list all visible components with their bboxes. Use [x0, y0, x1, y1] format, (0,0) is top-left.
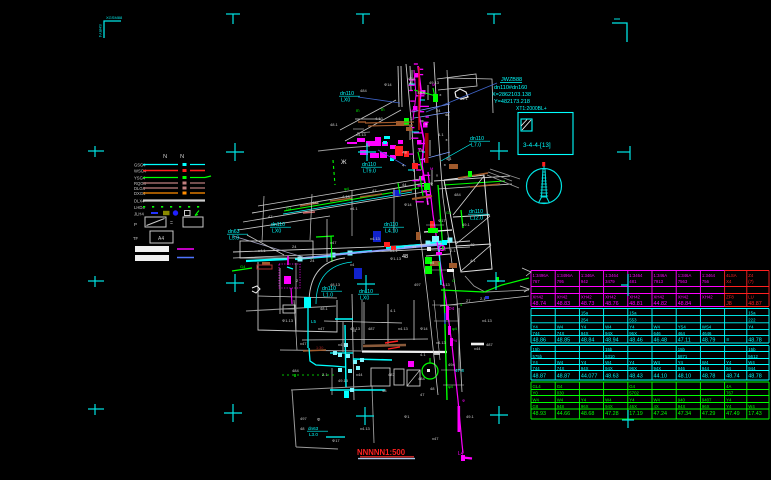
svg-text:47.8: 47.8 — [455, 368, 464, 373]
svg-text:L1.0: L1.0 — [323, 293, 333, 299]
svg-text:1:346A: 1:346A — [678, 273, 692, 278]
svg-text:G4: G4 — [629, 384, 635, 389]
svg-text:LX0: LX0 — [272, 229, 281, 235]
svg-text:484: 484 — [454, 192, 461, 197]
svg-text:m: m — [356, 108, 360, 113]
svg-text:575b: 575b — [533, 354, 543, 359]
svg-text:15a: 15a — [748, 311, 756, 316]
svg-text:G4: G4 — [446, 210, 452, 215]
svg-text:dn63: dn63 — [308, 426, 319, 431]
svg-text:47.24: 47.24 — [654, 411, 668, 417]
svg-text:948: 948 — [557, 404, 565, 409]
svg-text:XH42: XH42 — [678, 295, 689, 300]
svg-text:G8: G8 — [533, 404, 539, 409]
svg-text:X=2862103.138: X=2862103.138 — [492, 92, 531, 98]
svg-text:48.74: 48.74 — [726, 374, 740, 380]
svg-text:Y4: Y4 — [678, 360, 684, 365]
svg-text:94X: 94X — [581, 331, 589, 336]
svg-text:46X: 46X — [629, 404, 637, 409]
svg-text:484: 484 — [312, 200, 319, 205]
svg-text:47.28: 47.28 — [605, 411, 619, 417]
svg-text:94X: 94X — [605, 366, 613, 371]
svg-text:47.11: 47.11 — [678, 337, 691, 343]
svg-text:484: 484 — [292, 368, 299, 373]
svg-text:48: 48 — [418, 148, 423, 153]
svg-text:15a: 15a — [629, 311, 637, 316]
svg-text:Y4: Y4 — [748, 325, 754, 330]
svg-text:4.1: 4.1 — [446, 156, 452, 161]
svg-text:48.83: 48.83 — [557, 301, 571, 307]
svg-text:4LSA: 4LSA — [726, 273, 737, 278]
svg-text:48.85: 48.85 — [557, 337, 571, 343]
svg-text:1:3496A: 1:3496A — [557, 273, 573, 278]
svg-text:W4: W4 — [654, 325, 661, 330]
svg-text:5310: 5310 — [605, 354, 615, 359]
svg-text:SHRY4: SHRY4 — [98, 24, 103, 38]
svg-text:48.13: 48.13 — [330, 282, 341, 287]
svg-text:L12.0: L12.0 — [470, 216, 483, 222]
svg-text:L4: L4 — [458, 451, 464, 457]
svg-text:94X: 94X — [605, 404, 613, 409]
svg-text:4.13: 4.13 — [342, 194, 351, 199]
svg-text:1:30: 1:30 — [316, 346, 323, 350]
svg-text:494: 494 — [448, 362, 455, 367]
svg-text:15b: 15b — [748, 347, 756, 352]
svg-text:744: 744 — [533, 366, 541, 371]
svg-text:767: 767 — [533, 279, 541, 284]
svg-text:Y4: Y4 — [629, 325, 635, 330]
svg-text:Φ: Φ — [425, 122, 428, 127]
svg-text:Y4: Y4 — [581, 360, 587, 365]
svg-text:4.13: 4.13 — [375, 116, 384, 121]
svg-text:Y4: Y4 — [726, 360, 732, 365]
svg-text:5871: 5871 — [678, 354, 688, 359]
svg-text:J8: J8 — [726, 301, 732, 307]
svg-text:x47: x47 — [432, 436, 439, 441]
svg-text:96X: 96X — [629, 366, 637, 371]
svg-text:48.78: 48.78 — [748, 337, 762, 343]
svg-text:49.1: 49.1 — [466, 414, 475, 419]
svg-text:(7): (7) — [748, 279, 754, 284]
svg-text:48.78: 48.78 — [702, 374, 716, 380]
svg-text:24: 24 — [292, 244, 297, 249]
svg-text:767: 767 — [726, 391, 734, 396]
svg-text:48: 48 — [382, 388, 387, 393]
svg-text:W4: W4 — [533, 398, 540, 403]
svg-text:W4: W4 — [702, 360, 709, 365]
svg-text:48.87: 48.87 — [748, 301, 762, 307]
svg-text:Φ1.13: Φ1.13 — [282, 318, 294, 323]
svg-text:48.87: 48.87 — [533, 374, 547, 380]
svg-text:=: = — [170, 221, 173, 227]
svg-text:464: 464 — [678, 331, 686, 336]
svg-text:M: M — [430, 166, 433, 171]
svg-text:x: x — [423, 90, 425, 95]
svg-text:P4: P4 — [452, 338, 458, 343]
svg-text:XH42: XH42 — [605, 295, 616, 300]
svg-text:XH42: XH42 — [533, 295, 544, 300]
svg-text:48.86: 48.86 — [533, 337, 547, 343]
svg-text:487: 487 — [368, 326, 375, 331]
svg-text:487: 487 — [486, 342, 493, 347]
svg-text:44.077: 44.077 — [581, 374, 598, 380]
svg-text:Φ: Φ — [462, 398, 465, 403]
svg-text:TF: TF — [133, 236, 139, 241]
svg-text:Y0: Y0 — [533, 391, 539, 396]
svg-text:94X: 94X — [605, 331, 613, 336]
svg-text:φ4: φ4 — [448, 384, 454, 389]
svg-text:24: 24 — [436, 108, 441, 113]
svg-text:48: 48 — [470, 242, 475, 247]
svg-text:x4.13: x4.13 — [360, 426, 371, 431]
svg-text:48.79: 48.79 — [702, 337, 716, 343]
svg-text:44.66: 44.66 — [557, 411, 571, 417]
svg-text:L3.0: L3.0 — [309, 432, 318, 437]
svg-text:756: 756 — [702, 279, 710, 284]
svg-text:2.1: 2.1 — [450, 248, 456, 253]
svg-text:942: 942 — [581, 279, 589, 284]
svg-text:W4: W4 — [557, 325, 564, 330]
svg-text:15b: 15b — [605, 347, 613, 352]
svg-text:φ4: φ4 — [452, 326, 458, 331]
svg-text:XH42: XH42 — [629, 295, 640, 300]
svg-text:4.1: 4.1 — [438, 132, 444, 137]
svg-text:Z4: Z4 — [748, 273, 754, 278]
svg-text:15b: 15b — [678, 347, 686, 352]
svg-text:X4: X4 — [726, 279, 732, 284]
svg-text:L7.0: L7.0 — [471, 143, 481, 149]
svg-text:x: x — [439, 92, 441, 97]
svg-text:487: 487 — [388, 372, 395, 377]
svg-text:A4: A4 — [158, 236, 164, 242]
svg-text:795: 795 — [557, 279, 565, 284]
svg-text:JLH4: JLH4 — [134, 212, 144, 217]
svg-text:96X: 96X — [581, 404, 589, 409]
svg-text:48.73: 48.73 — [581, 301, 595, 307]
svg-text:484: 484 — [360, 88, 367, 93]
svg-text:x4.13: x4.13 — [436, 340, 447, 345]
svg-text:48.78: 48.78 — [748, 374, 762, 380]
svg-text:x44: x44 — [356, 372, 363, 377]
svg-text:YS4: YS4 — [678, 325, 687, 330]
svg-text:Φ17: Φ17 — [438, 218, 446, 223]
svg-text:x4.1: x4.1 — [258, 248, 266, 253]
svg-text:94X: 94X — [654, 366, 662, 371]
svg-text:x44: x44 — [474, 346, 481, 351]
svg-text:1:3464: 1:3464 — [702, 273, 716, 278]
svg-text:030: 030 — [557, 391, 565, 396]
svg-text:481: 481 — [629, 279, 637, 284]
svg-text:LX0: LX0 — [360, 296, 369, 302]
svg-text:48: 48 — [402, 149, 407, 154]
svg-text:944: 944 — [702, 366, 710, 371]
svg-text:4.1: 4.1 — [390, 308, 396, 313]
svg-text:Y4: Y4 — [629, 360, 635, 365]
svg-text:XH42: XH42 — [702, 295, 713, 300]
svg-text:47: 47 — [372, 188, 377, 193]
svg-text:W4: W4 — [748, 404, 755, 409]
svg-text:G4: G4 — [240, 264, 246, 269]
svg-text:x: x — [444, 162, 446, 167]
svg-text:74X: 74X — [557, 366, 565, 371]
svg-text:946: 946 — [678, 366, 686, 371]
svg-text:3-4-4-[13]: 3-4-4-[13] — [523, 142, 551, 149]
svg-text:48.68: 48.68 — [581, 411, 595, 417]
svg-text:4646: 4646 — [702, 331, 712, 336]
svg-text:24: 24 — [310, 258, 315, 263]
svg-text:x4.1: x4.1 — [390, 248, 398, 253]
svg-text:48.87: 48.87 — [557, 374, 571, 380]
svg-text:G: G — [452, 278, 455, 283]
svg-text:2.1: 2.1 — [480, 296, 486, 301]
svg-text:LT9.0: LT9.0 — [363, 169, 376, 175]
svg-text:94X: 94X — [678, 404, 686, 409]
svg-text:3479: 3479 — [605, 279, 615, 284]
svg-text:NNNNN1:500: NNNNN1:500 — [357, 448, 406, 457]
svg-text:LX0: LX0 — [341, 98, 350, 104]
svg-text:48.93: 48.93 — [533, 411, 547, 417]
svg-text:49.13: 49.13 — [338, 378, 349, 383]
svg-text:49.1: 49.1 — [462, 222, 471, 227]
svg-text:44.10: 44.10 — [654, 374, 668, 380]
svg-text:553: 553 — [629, 318, 637, 323]
svg-text:15b: 15b — [533, 347, 541, 352]
svg-text:W4: W4 — [654, 360, 661, 365]
svg-text:7563: 7563 — [678, 279, 688, 284]
svg-text:Φ4: Φ4 — [448, 306, 455, 311]
svg-text:Y4: Y4 — [533, 325, 539, 330]
svg-text:47.49: 47.49 — [726, 411, 740, 417]
svg-text:WS4: WS4 — [702, 325, 712, 330]
svg-text:Y=482173.218: Y=482173.218 — [494, 99, 530, 105]
svg-text:XH42: XH42 — [557, 295, 568, 300]
svg-text:17.43: 17.43 — [748, 411, 762, 417]
svg-text:L5: L5 — [311, 319, 316, 324]
svg-text:≡: ≡ — [726, 337, 729, 343]
svg-text:4.1: 4.1 — [420, 352, 426, 357]
svg-text:48.46: 48.46 — [629, 337, 643, 343]
svg-text:7913: 7913 — [654, 279, 664, 284]
svg-text:47: 47 — [268, 214, 273, 219]
svg-text:W4: W4 — [605, 360, 612, 365]
svg-text:x4.13: x4.13 — [356, 132, 367, 137]
svg-text:48: 48 — [300, 426, 305, 431]
svg-text:φ4: φ4 — [344, 186, 350, 191]
svg-text:4.13: 4.13 — [442, 282, 451, 287]
svg-text:N: N — [180, 154, 184, 160]
svg-text:ZF8: ZF8 — [726, 295, 734, 300]
svg-text:48: 48 — [417, 90, 422, 95]
svg-text:Φ14: Φ14 — [420, 326, 428, 331]
svg-text:m: m — [381, 107, 385, 112]
svg-text:XH42: XH42 — [654, 295, 665, 300]
svg-text:G4: G4 — [557, 384, 563, 389]
svg-text:W4: W4 — [654, 398, 661, 403]
svg-text:XT1:2000BL+: XT1:2000BL+ — [516, 106, 547, 112]
svg-text:Y4: Y4 — [533, 360, 539, 365]
svg-text:W4: W4 — [557, 360, 564, 365]
svg-text:17.19: 17.19 — [629, 411, 643, 417]
svg-text:1:3464: 1:3464 — [605, 273, 619, 278]
svg-text:Φ: Φ — [421, 118, 424, 123]
svg-text:Φ14: Φ14 — [404, 202, 412, 207]
svg-text:1:346A: 1:346A — [654, 273, 668, 278]
svg-text:x4.1: x4.1 — [350, 206, 358, 211]
svg-text:W4: W4 — [605, 325, 612, 330]
svg-text:48.74: 48.74 — [533, 301, 547, 307]
svg-text:Y4: Y4 — [726, 398, 732, 403]
svg-text:47: 47 — [420, 392, 425, 397]
svg-text:G4: G4 — [286, 206, 292, 211]
svg-text:497: 497 — [414, 282, 421, 287]
svg-text:P: P — [134, 222, 137, 227]
svg-text:x47: x47 — [330, 240, 337, 245]
svg-text:5612: 5612 — [748, 354, 758, 359]
svg-text:LU: LU — [748, 295, 754, 300]
svg-text:484: 484 — [418, 376, 425, 381]
svg-text:254: 254 — [581, 318, 589, 323]
svg-text:48.94: 48.94 — [605, 337, 619, 343]
svg-text:44: 44 — [412, 244, 417, 249]
svg-text:96X: 96X — [629, 331, 637, 336]
svg-text:27: 27 — [466, 298, 471, 303]
svg-text:L5.0: L5.0 — [229, 236, 239, 242]
svg-text:XH42: XH42 — [581, 295, 592, 300]
svg-text:96X: 96X — [702, 404, 710, 409]
svg-text:5702: 5702 — [629, 391, 639, 396]
svg-text:48.63: 48.63 — [605, 374, 619, 380]
svg-text:x4.13: x4.13 — [370, 236, 381, 241]
svg-text:744: 744 — [533, 331, 541, 336]
svg-text:Y4: Y4 — [629, 398, 635, 403]
svg-text:XGSM88: XGSM88 — [106, 15, 123, 20]
svg-text:W4: W4 — [605, 398, 612, 403]
svg-text:x4.13: x4.13 — [338, 342, 349, 347]
svg-text:944: 944 — [748, 366, 756, 371]
svg-text:46.48: 46.48 — [654, 337, 668, 343]
svg-text:Y4: Y4 — [726, 404, 732, 409]
svg-text:74X: 74X — [557, 331, 565, 336]
svg-text:9407: 9407 — [702, 398, 712, 403]
svg-text:W4: W4 — [557, 398, 564, 403]
svg-text:Φ: Φ — [430, 181, 433, 186]
svg-text:M: M — [410, 108, 413, 113]
svg-text:94X: 94X — [581, 366, 589, 371]
svg-text:48.10: 48.10 — [678, 374, 692, 380]
svg-text:W4: W4 — [748, 360, 755, 365]
svg-text:1:3464: 1:3464 — [629, 273, 643, 278]
svg-text:M: M — [432, 82, 435, 87]
svg-text:Y4: Y4 — [581, 398, 587, 403]
svg-text:Φ17: Φ17 — [332, 438, 340, 443]
svg-text:2.1: 2.1 — [322, 372, 328, 377]
svg-text:Φ1.13: Φ1.13 — [390, 256, 402, 261]
svg-text:15a: 15a — [581, 311, 589, 316]
svg-text:Y4: Y4 — [581, 325, 587, 330]
svg-text:Φ1: Φ1 — [404, 414, 410, 419]
svg-text:4.1: 4.1 — [470, 258, 476, 263]
svg-text:48: 48 — [445, 112, 450, 117]
svg-text:x: x — [436, 172, 438, 177]
svg-text:47.34: 47.34 — [678, 411, 692, 417]
svg-text:4X: 4X — [654, 404, 659, 409]
svg-text:x: x — [445, 137, 447, 142]
svg-text:646: 646 — [654, 331, 662, 336]
svg-text:1:346A: 1:346A — [581, 273, 595, 278]
svg-text:48.84: 48.84 — [678, 301, 692, 307]
svg-text:x47: x47 — [300, 341, 307, 346]
svg-text:47.29: 47.29 — [702, 411, 716, 417]
svg-text:N: N — [163, 154, 167, 160]
svg-text:x47: x47 — [318, 326, 325, 331]
svg-text:48.43: 48.43 — [629, 374, 643, 380]
svg-text:48.1: 48.1 — [320, 306, 329, 311]
svg-text:48: 48 — [430, 386, 435, 391]
svg-text:GL4: GL4 — [533, 384, 542, 389]
svg-text:Φ14: Φ14 — [384, 82, 392, 87]
svg-text:222: 222 — [748, 318, 756, 323]
svg-text:44: 44 — [402, 182, 407, 187]
svg-text:4A: 4A — [726, 384, 731, 389]
svg-text:dn110#dn160: dn110#dn160 — [494, 85, 527, 91]
svg-text:94: 94 — [726, 366, 731, 371]
svg-text:48: 48 — [402, 254, 408, 260]
svg-text:1:3496A: 1:3496A — [533, 273, 549, 278]
svg-text:x4.13: x4.13 — [482, 318, 493, 323]
svg-text:940: 940 — [678, 398, 686, 403]
svg-text:L4.10: L4.10 — [385, 229, 398, 235]
svg-text:48.76: 48.76 — [605, 301, 619, 307]
svg-text:48.1: 48.1 — [330, 122, 339, 127]
svg-text:Ж: Ж — [341, 160, 347, 166]
svg-text:48.81: 48.81 — [629, 301, 643, 307]
svg-text:48.84: 48.84 — [581, 337, 595, 343]
svg-text:497: 497 — [300, 416, 307, 421]
svg-text:x4.13: x4.13 — [398, 326, 409, 331]
svg-text:44.82: 44.82 — [654, 301, 668, 307]
